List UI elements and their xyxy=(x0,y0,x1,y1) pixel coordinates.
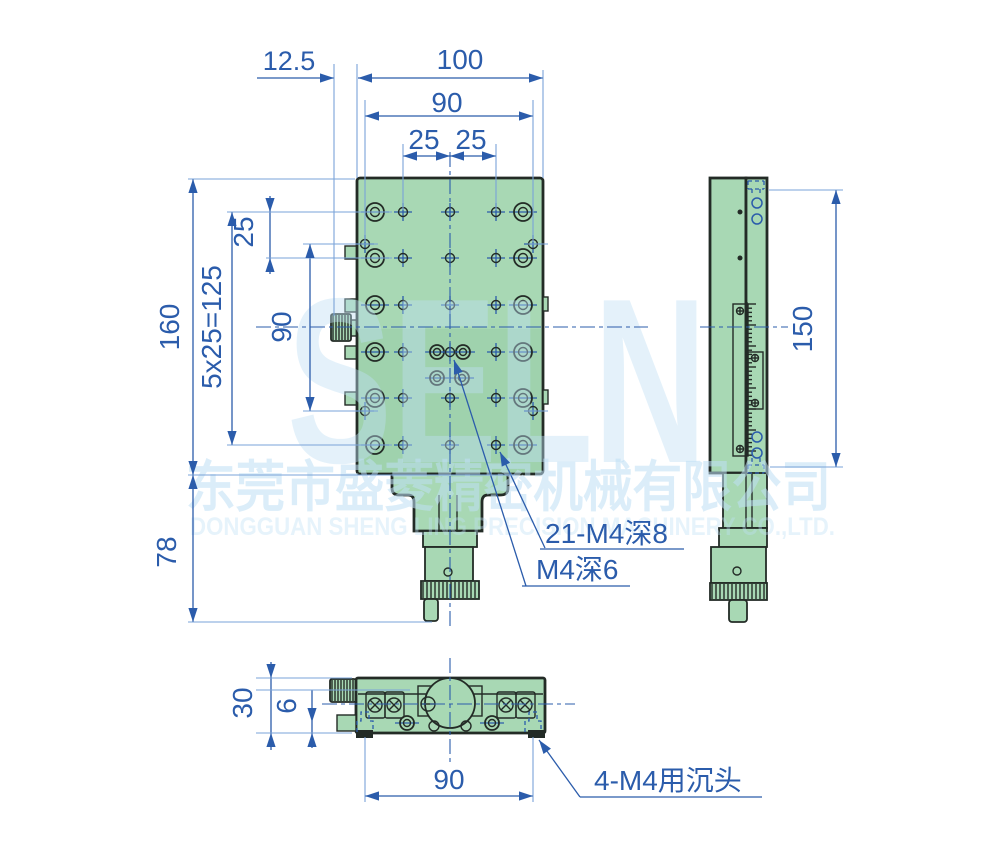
arrowhead xyxy=(266,664,275,678)
dim-left-lower: 78 xyxy=(151,536,182,567)
arrowhead xyxy=(265,258,274,272)
dim-left-inner: 90 xyxy=(266,311,297,342)
label-hole-center: M4深6 xyxy=(536,554,618,585)
arrowhead xyxy=(266,733,275,747)
label-holes-grid: 21-M4深8 xyxy=(545,518,668,549)
side-micrometer-barrel xyxy=(711,547,766,583)
arrowhead xyxy=(519,111,533,120)
side-body xyxy=(710,178,746,473)
side-micrometer-thimble xyxy=(710,583,767,600)
plate-screw xyxy=(752,400,759,407)
dim-top-inner: 90 xyxy=(431,87,462,118)
arrowhead xyxy=(519,791,533,800)
arrowhead xyxy=(831,453,840,467)
bottom-tab xyxy=(337,715,356,731)
arrowhead xyxy=(307,708,316,722)
company-name-cn-watermark: 东莞市盛菱精密机械有限公司 xyxy=(186,456,831,518)
arrowhead xyxy=(265,198,274,212)
dim-top-overall: 100 xyxy=(437,44,484,75)
corner-foot xyxy=(356,730,373,738)
arrowhead xyxy=(320,73,334,82)
micrometer-stem xyxy=(424,599,438,621)
dim-bottom-height: 30 xyxy=(227,687,258,718)
plate-screw xyxy=(737,446,744,453)
label-holes-countersunk: 4-M4用沉头 xyxy=(594,765,742,796)
arrowhead xyxy=(307,733,316,747)
side-micrometer-stem xyxy=(729,600,747,622)
dim-left-overall: 160 xyxy=(154,304,185,351)
dim-top-offset: 12.5 xyxy=(263,46,316,76)
arrowhead xyxy=(358,73,372,82)
arrowhead xyxy=(188,179,197,193)
corner-foot xyxy=(528,730,545,738)
pin-hole xyxy=(738,210,743,215)
arrowhead xyxy=(227,431,236,445)
arrowhead xyxy=(535,737,551,754)
dim-top-pitch-left: 25 xyxy=(408,124,439,155)
arrowhead xyxy=(365,111,379,120)
dim-side-height: 150 xyxy=(787,306,818,353)
technical-drawing: SELN 东莞市盛菱精密机械有限公司 DONGGUAN SHENG LING P… xyxy=(0,0,1001,853)
pin-hole xyxy=(738,256,743,261)
arrowhead xyxy=(831,190,840,204)
company-name-en-watermark: DONGGUAN SHENG LING PRECISION MACHINERY … xyxy=(190,513,835,541)
side-view xyxy=(710,178,767,622)
dim-bottom-width: 90 xyxy=(433,764,464,795)
dim-left-pitch: 25 xyxy=(228,216,259,247)
plate-screw xyxy=(737,308,744,315)
arrowhead xyxy=(365,791,379,800)
plate-screw xyxy=(752,355,759,362)
drawing-canvas: SELN 东莞市盛菱精密机械有限公司 DONGGUAN SHENG LING P… xyxy=(0,0,1001,853)
arrowhead xyxy=(529,73,543,82)
dim-bottom-step: 6 xyxy=(271,698,302,714)
dim-left-pitch-total: 5x25=125 xyxy=(196,265,227,389)
dim-top-pitch-right: 25 xyxy=(455,124,486,155)
arrowhead xyxy=(188,608,197,622)
